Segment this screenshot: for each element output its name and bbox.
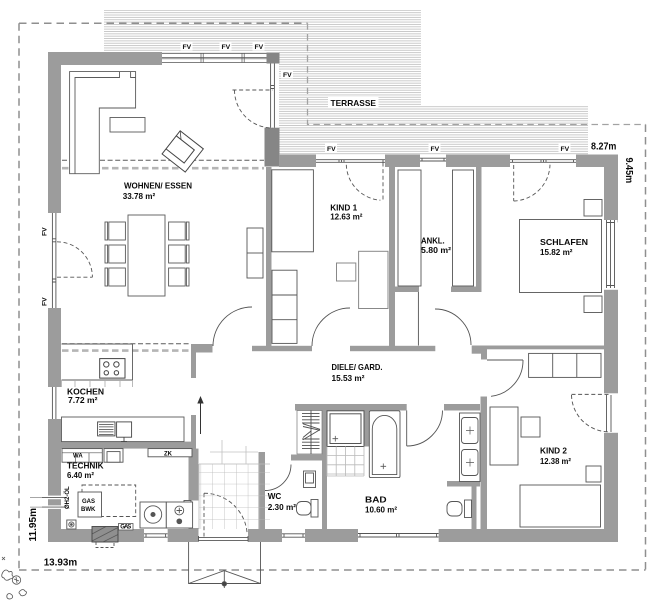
svg-text:9.45m: 9.45m	[623, 158, 634, 184]
svg-text:11.95m: 11.95m	[28, 508, 39, 542]
svg-text:5.80 m²: 5.80 m²	[421, 245, 451, 255]
svg-text:FV: FV	[42, 227, 49, 236]
svg-text:FV: FV	[283, 72, 292, 79]
svg-text:FV: FV	[42, 297, 49, 306]
svg-text:FV: FV	[327, 146, 336, 153]
svg-text:8.27m: 8.27m	[591, 141, 616, 152]
svg-text:BAD: BAD	[365, 494, 387, 504]
svg-text:FV: FV	[561, 146, 570, 153]
svg-text:KIND 2: KIND 2	[540, 446, 567, 456]
svg-text:GAS: GAS	[82, 499, 95, 505]
svg-text:ZK: ZK	[164, 452, 173, 458]
svg-text:2.30 m²: 2.30 m²	[268, 502, 296, 512]
svg-text:WOHNEN/ ESSEN: WOHNEN/ ESSEN	[124, 180, 192, 190]
svg-text:FV: FV	[431, 146, 440, 153]
svg-text:15.53 m²: 15.53 m²	[332, 373, 365, 383]
svg-text:12.38 m²: 12.38 m²	[540, 456, 571, 466]
svg-text:FV: FV	[183, 44, 192, 51]
svg-text:WC: WC	[268, 491, 282, 501]
svg-text:33.78 m²: 33.78 m²	[123, 191, 156, 201]
svg-text:FV: FV	[222, 44, 231, 51]
svg-text:10.60 m²: 10.60 m²	[365, 505, 397, 515]
svg-text:GAS: GAS	[120, 524, 131, 530]
svg-text:DIELE/ GARD.: DIELE/ GARD.	[332, 362, 383, 372]
svg-text:12.63 m²: 12.63 m²	[330, 212, 362, 222]
svg-text:BWK: BWK	[81, 507, 96, 513]
svg-text:ØH2-ÖL: ØH2-ÖL	[64, 486, 71, 509]
svg-text:7.72 m²: 7.72 m²	[68, 395, 98, 405]
svg-text:6.40 m²: 6.40 m²	[67, 470, 94, 480]
svg-text:SCHLAFEN: SCHLAFEN	[540, 237, 588, 247]
svg-text:WA: WA	[73, 454, 83, 460]
svg-text:FV: FV	[255, 44, 264, 51]
svg-text:15.82 m²: 15.82 m²	[540, 247, 573, 257]
svg-text:13.93m: 13.93m	[44, 558, 78, 569]
svg-text:TERRASSE: TERRASSE	[331, 98, 377, 108]
